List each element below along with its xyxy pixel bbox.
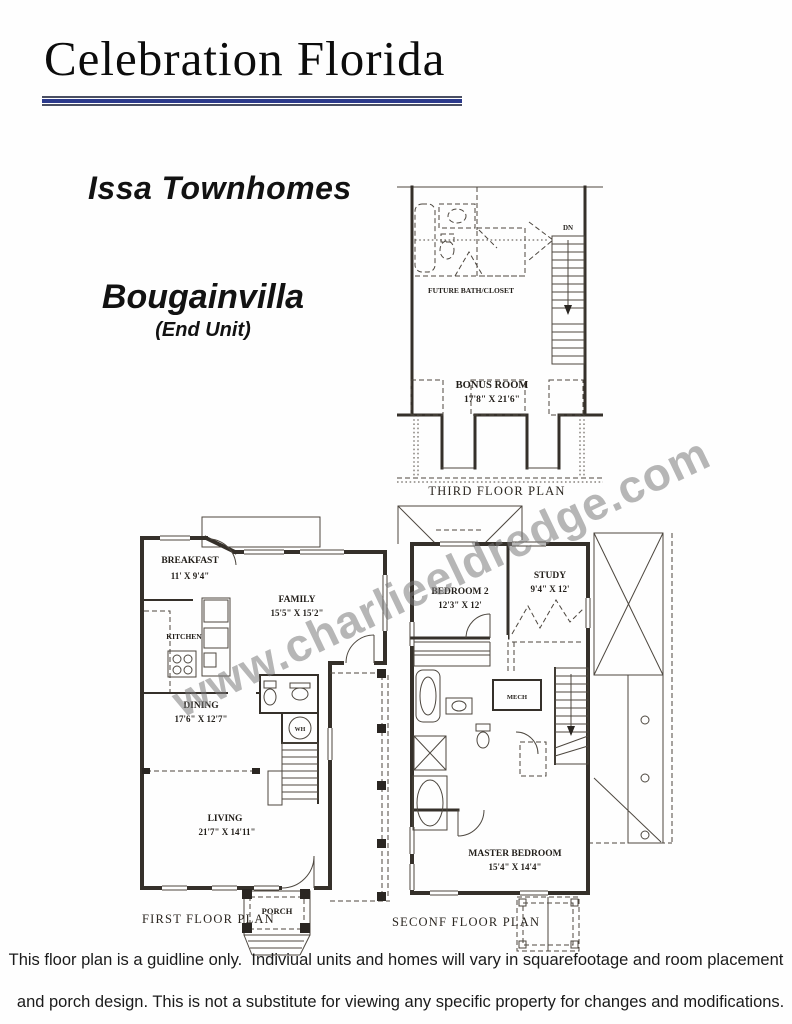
model-block: Bougainvilla (End Unit) bbox=[96, 278, 310, 342]
bath-fixtures bbox=[264, 681, 310, 705]
bonus-room-label: BONUS ROOM bbox=[456, 380, 529, 391]
model-unit-note: (End Unit) bbox=[96, 319, 310, 342]
third-floor-plan: FUTURE BATH/CLOSET DN BONUS ROOM 17'8" X… bbox=[397, 180, 603, 498]
bedroom2-label: BEDROOM 2 bbox=[431, 587, 489, 597]
page-title: Celebration Florida bbox=[44, 30, 445, 87]
title-underline bbox=[42, 96, 462, 106]
kitchen-fixtures bbox=[144, 598, 230, 693]
stairs-up bbox=[268, 743, 318, 805]
future-bath-fixtures bbox=[415, 187, 553, 276]
dining-dims: 17'6" X 12'7" bbox=[175, 714, 228, 724]
disclaimer: This floor plan is a guidline only. Indi… bbox=[0, 950, 792, 1013]
kitchen-label: KITCHEN bbox=[166, 632, 202, 641]
disclaimer-line2: and porch design. This is not a substitu… bbox=[17, 993, 784, 1011]
door-arcs bbox=[458, 614, 538, 836]
community-name: Issa Townhomes bbox=[88, 170, 352, 207]
master-dims: 15'4" X 14'4" bbox=[489, 862, 542, 872]
roof-top-left bbox=[398, 506, 522, 544]
third-floor-caption: THIRD FLOOR PLAN bbox=[428, 484, 565, 498]
front-door-arc bbox=[282, 856, 314, 888]
flyer-page: Celebration Florida Issa Townhomes Bouga… bbox=[0, 0, 792, 1024]
first-floor-caption: FIRST FLOOR PLAN bbox=[142, 912, 275, 926]
living-label: LIVING bbox=[208, 814, 243, 824]
bonus-room-dims: 17'8" X 21'6" bbox=[464, 395, 520, 405]
stairs-dn-label: DN bbox=[563, 224, 573, 232]
roof-right bbox=[588, 533, 672, 843]
stairs-down bbox=[552, 236, 584, 364]
model-name: Bougainvilla bbox=[96, 278, 310, 317]
family-dims: 15'5" X 15'2" bbox=[271, 608, 324, 618]
bedroom2-dims: 12'3" X 12' bbox=[438, 600, 482, 610]
family-label: FAMILY bbox=[279, 595, 316, 605]
study-dims: 9'4" X 12' bbox=[531, 584, 570, 594]
closet bbox=[414, 642, 490, 666]
disclaimer-line1: This floor plan is a guidline only. Indi… bbox=[9, 951, 784, 969]
side-porch bbox=[330, 669, 390, 901]
master-label: MASTER BEDROOM bbox=[468, 849, 561, 859]
second-floor-plan: BEDROOM 2 12'3" X 12' STUDY 9'4" X 12' M… bbox=[390, 502, 682, 957]
mech-label: MECH bbox=[507, 694, 527, 701]
family-door-arc bbox=[346, 635, 374, 663]
dining-label: DINING bbox=[183, 701, 219, 711]
breakfast-label: BREAKFAST bbox=[161, 556, 219, 566]
breakfast-dims: 11' X 9'4" bbox=[171, 571, 210, 581]
living-dims: 21'7" X 14'11" bbox=[199, 827, 256, 837]
stairs bbox=[555, 668, 588, 764]
kneewall-dashes bbox=[508, 600, 584, 672]
family-door-gap bbox=[344, 659, 374, 667]
cased-opening bbox=[142, 768, 260, 774]
future-bath-label: FUTURE BATH/CLOSET bbox=[428, 286, 514, 295]
second-floor-caption: SECONF FLOOR PLAN bbox=[392, 915, 540, 929]
water-heater-label: WH bbox=[295, 727, 306, 733]
study-label: STUDY bbox=[534, 571, 566, 581]
first-floor-plan: WH bbox=[132, 503, 398, 963]
